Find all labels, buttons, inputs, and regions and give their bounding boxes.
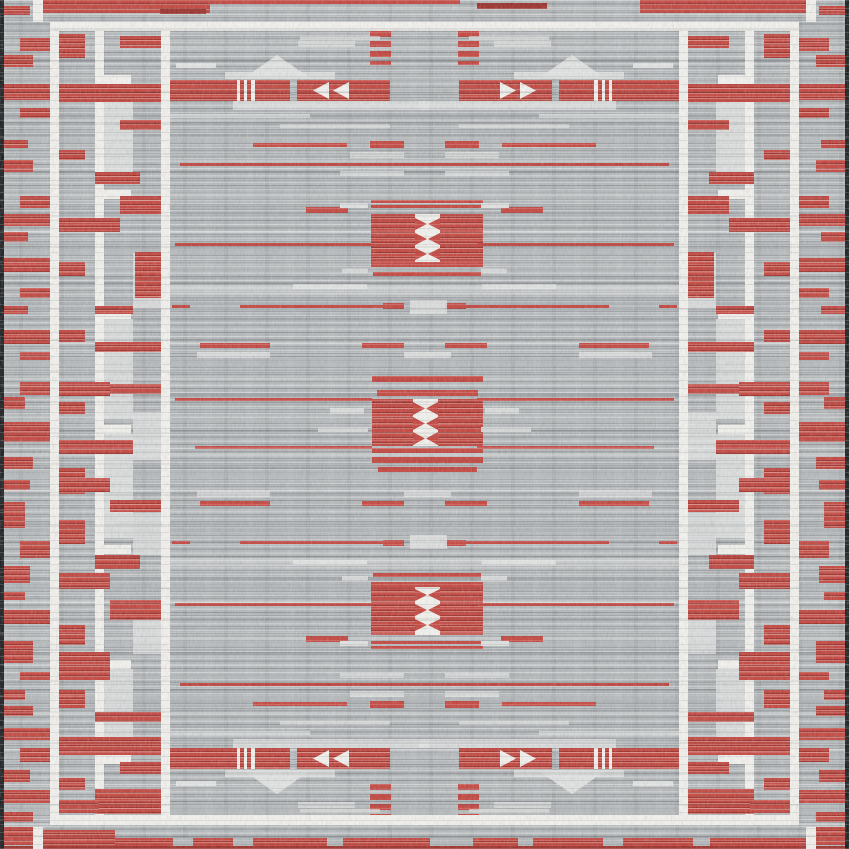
rug-pattern-ll [481, 203, 509, 208]
rug-pattern-ll [716, 319, 745, 419]
rug-pattern-r [816, 55, 846, 67]
rug-pattern-r [799, 38, 829, 51]
rug-pattern-l [342, 576, 368, 581]
rug-pattern-r [58, 652, 110, 680]
rug-pattern-rs [378, 467, 477, 472]
rug-pattern-r [819, 6, 846, 15]
rug-pattern-r [95, 172, 140, 184]
rug-pattern-r [58, 382, 110, 396]
rug-pattern-r [821, 140, 846, 148]
rug-pattern-r [85, 478, 110, 492]
rug-pattern-r [110, 500, 161, 512]
rug-pattern-ll [233, 739, 430, 748]
rug-pattern-r [20, 748, 50, 762]
rug-pattern-l [298, 41, 355, 47]
rug-pattern-rs [445, 701, 479, 708]
rug-pattern-rs [445, 141, 479, 148]
rug-pattern-r [3, 502, 25, 528]
rug-pattern-rs [253, 702, 347, 706]
rug-pattern-w [244, 748, 247, 769]
rug-pattern-r [3, 232, 28, 242]
rug-pattern-w [602, 748, 605, 769]
rug-pattern-r [764, 520, 791, 544]
rug-pattern-rs [372, 457, 483, 463]
rug-pattern-ll [445, 171, 509, 176]
rug-pattern-ll [419, 101, 616, 110]
rug-pattern-r [3, 306, 28, 314]
rug-pattern-rs [172, 541, 190, 544]
rug-pattern-rs [372, 448, 483, 453]
rug-pattern-ll [340, 203, 368, 208]
rug-pattern-rs [175, 398, 372, 401]
rug-pattern-r [688, 384, 739, 394]
rug-pattern-r [739, 652, 791, 680]
rug-pattern-r [58, 440, 133, 454]
rug-pattern-r [799, 196, 829, 208]
rug-pattern-r [799, 748, 829, 762]
rug-pattern-r [58, 800, 99, 813]
rug-pattern-r [764, 402, 791, 414]
rug-pattern-r [824, 502, 846, 528]
rug-pattern-r [95, 555, 140, 569]
rug-pattern-r [688, 500, 739, 512]
rug-pattern-rs [253, 143, 347, 147]
rug-pattern-r [688, 789, 754, 814]
rug-pattern-ll [539, 114, 679, 118]
rug-pattern-ll [176, 63, 216, 68]
rug-pattern-w [244, 80, 247, 101]
rug-pattern-r [20, 541, 50, 558]
rug-pattern-r [58, 520, 85, 544]
rug-pattern-ll [133, 412, 161, 460]
rug-pattern-w [50, 815, 799, 825]
rug-pattern-w [237, 748, 240, 769]
rug-pattern-r [20, 196, 50, 208]
rug-pattern-ll [197, 491, 270, 497]
rug-pattern-ll [300, 36, 380, 40]
rug-pattern-ll [300, 809, 380, 813]
rug-pattern-r [43, 830, 115, 846]
rug-pattern-r [764, 625, 791, 645]
rug-pattern-ll [176, 781, 216, 786]
rug-pattern-r [559, 748, 679, 769]
rug-pattern-r [95, 342, 161, 352]
rug-pattern-w [609, 748, 612, 769]
rug-pattern-ll [233, 101, 430, 110]
rug-pattern-r [3, 610, 50, 624]
rug-pattern-rs [371, 205, 483, 208]
rug-pattern-w [594, 748, 598, 769]
rug-pattern-r [739, 478, 764, 492]
rug-pattern-r [120, 762, 161, 774]
rug-pattern-r [816, 706, 846, 716]
rug-pattern-ll [633, 781, 673, 786]
rug-pattern-r [688, 196, 729, 214]
rug-pattern-ll [170, 558, 679, 566]
rug-pattern-rs [371, 262, 483, 267]
rug-pattern-r [816, 827, 845, 845]
rug-pattern-r [739, 573, 791, 589]
rug-pattern-r [3, 480, 30, 490]
rug-pattern-r [821, 232, 846, 242]
rug-pattern-ll [293, 284, 367, 289]
rug-pattern-ll [445, 673, 509, 678]
rug-pattern-r [95, 789, 161, 814]
rug-pattern-r [3, 55, 33, 67]
rug-pattern-w [95, 75, 131, 84]
rug-pattern-r [58, 218, 120, 232]
rug-pattern-r [20, 288, 50, 298]
rug-pattern-ll [539, 731, 679, 735]
rug-pattern-ll [459, 124, 569, 128]
rug-pattern-r [3, 160, 33, 172]
rug-pattern-w [718, 75, 754, 84]
rug-pattern-ll [688, 513, 716, 555]
rug-pattern-ll [280, 721, 390, 725]
rug-pattern-rs [180, 683, 669, 686]
rug-pattern-w [609, 80, 612, 101]
rug-pattern-canvas [0, 0, 849, 849]
rug-pattern-rs [445, 303, 466, 309]
rug-pattern-ll [330, 408, 364, 414]
rug-pattern-r [3, 330, 50, 344]
rug-pattern-rs [659, 541, 677, 544]
rug-pattern-r [819, 480, 846, 490]
rug-pattern-w [95, 425, 131, 434]
rug-pattern-r [819, 566, 846, 583]
rug-pattern-r [170, 748, 290, 769]
rug-pattern-r [58, 262, 85, 276]
rug-photo [0, 0, 849, 849]
rug-pattern-w [790, 22, 799, 824]
rug-pattern-r [58, 330, 85, 342]
rug-pattern-r [120, 120, 161, 130]
rug-pattern-rs [373, 573, 481, 577]
rug-pattern-rs [445, 343, 487, 348]
rug-pattern-l [481, 576, 507, 581]
rug-pattern-r [3, 140, 28, 148]
rug-pattern-ll [280, 124, 390, 128]
rug-pattern-rs [362, 501, 404, 506]
rug-pattern-rs [240, 541, 404, 544]
rug-pattern-ll [104, 319, 133, 419]
rug-pattern-r [729, 218, 791, 232]
rug-pattern-r [3, 592, 25, 600]
rug-pattern-rs [383, 540, 404, 546]
rug-pattern-r [20, 108, 50, 118]
rug-pattern-r [799, 258, 846, 272]
rug-pattern-ll [340, 641, 368, 646]
rug-pattern-r [3, 422, 50, 442]
rug-pattern-w [237, 80, 240, 101]
rug-pattern-r [4, 827, 33, 845]
rug-pattern-ll [469, 809, 549, 813]
rug-pattern-rs [445, 305, 609, 308]
rug-pattern-l [481, 268, 507, 273]
rug-pattern-l [350, 691, 404, 697]
rug-pattern-rs [200, 343, 270, 348]
rug-pattern-r [764, 262, 791, 276]
rug-pattern-rs [478, 243, 674, 246]
rug-pattern-r [821, 306, 846, 314]
rug-pattern-r [716, 440, 791, 454]
rug-pattern-ll [579, 352, 652, 358]
rug-pattern-r [559, 80, 679, 101]
rug-pattern-ll [225, 770, 335, 777]
rug-pattern-r [640, 0, 806, 13]
rug-pattern-ll [514, 770, 624, 777]
rug-pattern-r [688, 36, 729, 48]
rug-pattern-rs [445, 541, 609, 544]
rug-pattern-r [688, 762, 729, 774]
rug-pattern-r [688, 342, 754, 352]
rug-pattern-r [799, 288, 829, 298]
rug-pattern-ll [340, 171, 404, 176]
rug-pattern-r [799, 610, 846, 624]
rug-pattern-r [3, 812, 33, 822]
rug-pattern-ll [481, 641, 509, 646]
rug-pattern-r [799, 84, 846, 100]
rug-pattern-ll [419, 739, 616, 748]
rug-pattern-r [20, 38, 50, 51]
rug-pattern-r [824, 690, 846, 700]
rug-pattern-r [3, 566, 30, 583]
rug-pattern-rs [180, 163, 669, 166]
rug-pattern-l [494, 41, 551, 47]
rug-pattern-ll [170, 114, 310, 118]
rug-pattern-r [816, 812, 846, 822]
rug-pattern-rs [579, 343, 649, 348]
rug-pattern-r [824, 397, 846, 409]
rug-pattern-w [33, 827, 43, 849]
rug-pattern-l [481, 427, 531, 432]
rug-pattern-ll [410, 535, 447, 549]
rug-pattern-rs [478, 603, 674, 606]
rug-pattern-k [845, 0, 849, 849]
rug-pattern-r [3, 690, 25, 700]
rug-pattern-r [688, 252, 714, 298]
rug-pattern-w [95, 545, 131, 554]
rug-pattern-r [3, 397, 25, 409]
rug-pattern-ll [170, 285, 679, 294]
rug-pattern-ll [459, 721, 569, 725]
rug-pattern-r [764, 150, 791, 160]
rug-pattern-rs [210, 0, 460, 4]
rug-pattern-r [799, 108, 829, 118]
rug-pattern-w [718, 545, 754, 554]
rug-pattern-r [3, 706, 33, 716]
rug-pattern-r [764, 690, 791, 708]
rug-pattern-r [58, 690, 85, 708]
rug-pattern-w [679, 31, 688, 815]
rug-pattern-ll [469, 36, 549, 40]
rug-pattern-r [58, 34, 85, 58]
rug-pattern-r [799, 728, 846, 740]
rug-pattern-r [750, 800, 791, 813]
rug-pattern-r [688, 712, 754, 722]
rug-pattern-l [494, 802, 551, 808]
rug-pattern-w [161, 31, 170, 815]
rug-pattern-rs [445, 501, 487, 506]
rug-pattern-r [688, 737, 791, 755]
rug-pattern-rs [371, 646, 483, 649]
rug-pattern-r [120, 196, 161, 214]
rug-pattern-dr [477, 3, 547, 9]
rug-pattern-r [799, 422, 846, 442]
rug-pattern-l [350, 152, 404, 158]
rug-pattern-ll [293, 560, 367, 565]
rug-pattern-r [824, 592, 846, 600]
rug-pattern-r [3, 641, 33, 663]
rug-pattern-ll [633, 63, 673, 68]
rug-pattern-l [298, 802, 355, 808]
rug-pattern-r [95, 712, 161, 722]
rug-pattern-w [95, 31, 104, 815]
rug-pattern-r [120, 36, 161, 48]
rug-pattern-w [50, 22, 799, 31]
rug-pattern-r [716, 306, 754, 314]
rug-pattern-rs [371, 200, 483, 203]
rug-pattern-r [816, 641, 846, 663]
rug-pattern-r [58, 84, 161, 102]
rug-pattern-r [110, 384, 161, 394]
rug-pattern-w [50, 22, 59, 824]
rug-pattern-ll [404, 491, 451, 497]
rug-pattern-r [3, 258, 50, 272]
rug-pattern-ll [485, 408, 519, 414]
rug-pattern-r [58, 625, 85, 645]
rug-pattern-r [799, 352, 829, 360]
rug-pattern-r [58, 778, 85, 790]
rug-pattern-ll [197, 352, 270, 358]
rug-pattern-rs [383, 303, 404, 309]
rug-pattern-r [709, 555, 754, 569]
rug-pattern-l [445, 152, 499, 158]
rug-pattern-rs [362, 343, 404, 348]
rug-pattern-rs [373, 272, 481, 276]
rug-pattern-r [3, 214, 50, 226]
rug-pattern-r [95, 306, 133, 314]
rug-pattern-rs [175, 243, 371, 246]
rug-pattern-w [251, 748, 255, 769]
rug-pattern-ll [579, 491, 652, 497]
rug-pattern-rs [372, 376, 483, 382]
rug-pattern-r [799, 214, 846, 226]
rug-pattern-rs [659, 305, 677, 308]
rug-pattern-r [3, 790, 50, 803]
rug-pattern-rs [445, 540, 466, 546]
rug-pattern-k [0, 0, 4, 849]
rug-pattern-rs [477, 446, 654, 449]
rug-pattern-r [688, 600, 739, 620]
rug-pattern-w [251, 80, 255, 101]
rug-pattern-r [58, 468, 85, 494]
rug-pattern-r [816, 160, 846, 172]
rug-pattern-l [342, 268, 368, 273]
rug-pattern-r [799, 672, 829, 680]
rug-pattern-r [135, 252, 161, 298]
rug-pattern-r [816, 457, 846, 469]
rug-pattern-rs [370, 141, 404, 148]
rug-pattern-r [58, 573, 110, 589]
rug-pattern-r [58, 150, 85, 160]
rug-pattern-rs [370, 701, 404, 708]
rug-pattern-w [33, 0, 43, 22]
rug-pattern-r [3, 84, 50, 100]
rug-pattern-w [718, 425, 754, 434]
rug-pattern-rs [579, 501, 649, 506]
rug-pattern-rs [477, 398, 674, 401]
rug-pattern-r [739, 382, 791, 396]
rug-pattern-ll [482, 560, 556, 565]
rug-pattern-r [799, 790, 846, 803]
rug-pattern-rs [200, 501, 270, 506]
rug-pattern-r [58, 402, 85, 414]
rug-pattern-rs [377, 390, 478, 396]
rug-pattern-r [764, 778, 791, 790]
rug-pattern-r [799, 382, 829, 395]
rug-pattern-rs [175, 603, 371, 606]
rug-pattern-r [819, 770, 846, 782]
rug-pattern-rs [502, 702, 596, 706]
rug-pattern-w [745, 31, 754, 815]
rug-pattern-ll [133, 513, 161, 555]
rug-pattern-r [3, 728, 50, 740]
rug-pattern-w [602, 80, 605, 101]
rug-pattern-r [20, 672, 50, 680]
rug-pattern-ll [340, 673, 404, 678]
rug-pattern-ll [410, 300, 447, 314]
rug-pattern-r [58, 737, 161, 755]
rug-pattern-r [764, 34, 791, 58]
rug-pattern-rs [240, 305, 404, 308]
rug-pattern-rs [371, 582, 483, 587]
rug-pattern-r [20, 382, 50, 395]
rug-pattern-ll [482, 284, 556, 289]
rug-pattern-r [20, 352, 50, 360]
rug-pattern-r [799, 330, 846, 344]
rug-pattern-w [594, 80, 598, 101]
rug-pattern-dr [160, 9, 206, 14]
rug-pattern-r [110, 600, 161, 620]
rug-pattern-w [806, 0, 816, 22]
rug-pattern-r [688, 84, 791, 102]
rug-pattern-r [764, 330, 791, 342]
rug-pattern-rs [371, 641, 483, 644]
rug-pattern-ll [514, 72, 624, 79]
rug-pattern-r [764, 468, 791, 494]
rug-pattern-r [170, 80, 290, 101]
rug-pattern-ll [170, 731, 310, 735]
rug-pattern-r [3, 6, 30, 15]
rug-pattern-ll [688, 412, 716, 460]
rug-pattern-ll [225, 72, 335, 79]
rug-pattern-rs [172, 305, 190, 308]
rug-pattern-ll [404, 352, 451, 358]
rug-pattern-l [445, 691, 499, 697]
rug-pattern-r [3, 457, 33, 469]
rug-pattern-r [709, 172, 754, 184]
rug-pattern-r [3, 770, 30, 782]
rug-pattern-l [318, 427, 368, 432]
rug-pattern-rs [195, 446, 372, 449]
rug-pattern-rs [502, 143, 596, 147]
rug-pattern-r [799, 541, 829, 558]
rug-pattern-w [806, 827, 816, 849]
rug-pattern-r [688, 120, 729, 130]
